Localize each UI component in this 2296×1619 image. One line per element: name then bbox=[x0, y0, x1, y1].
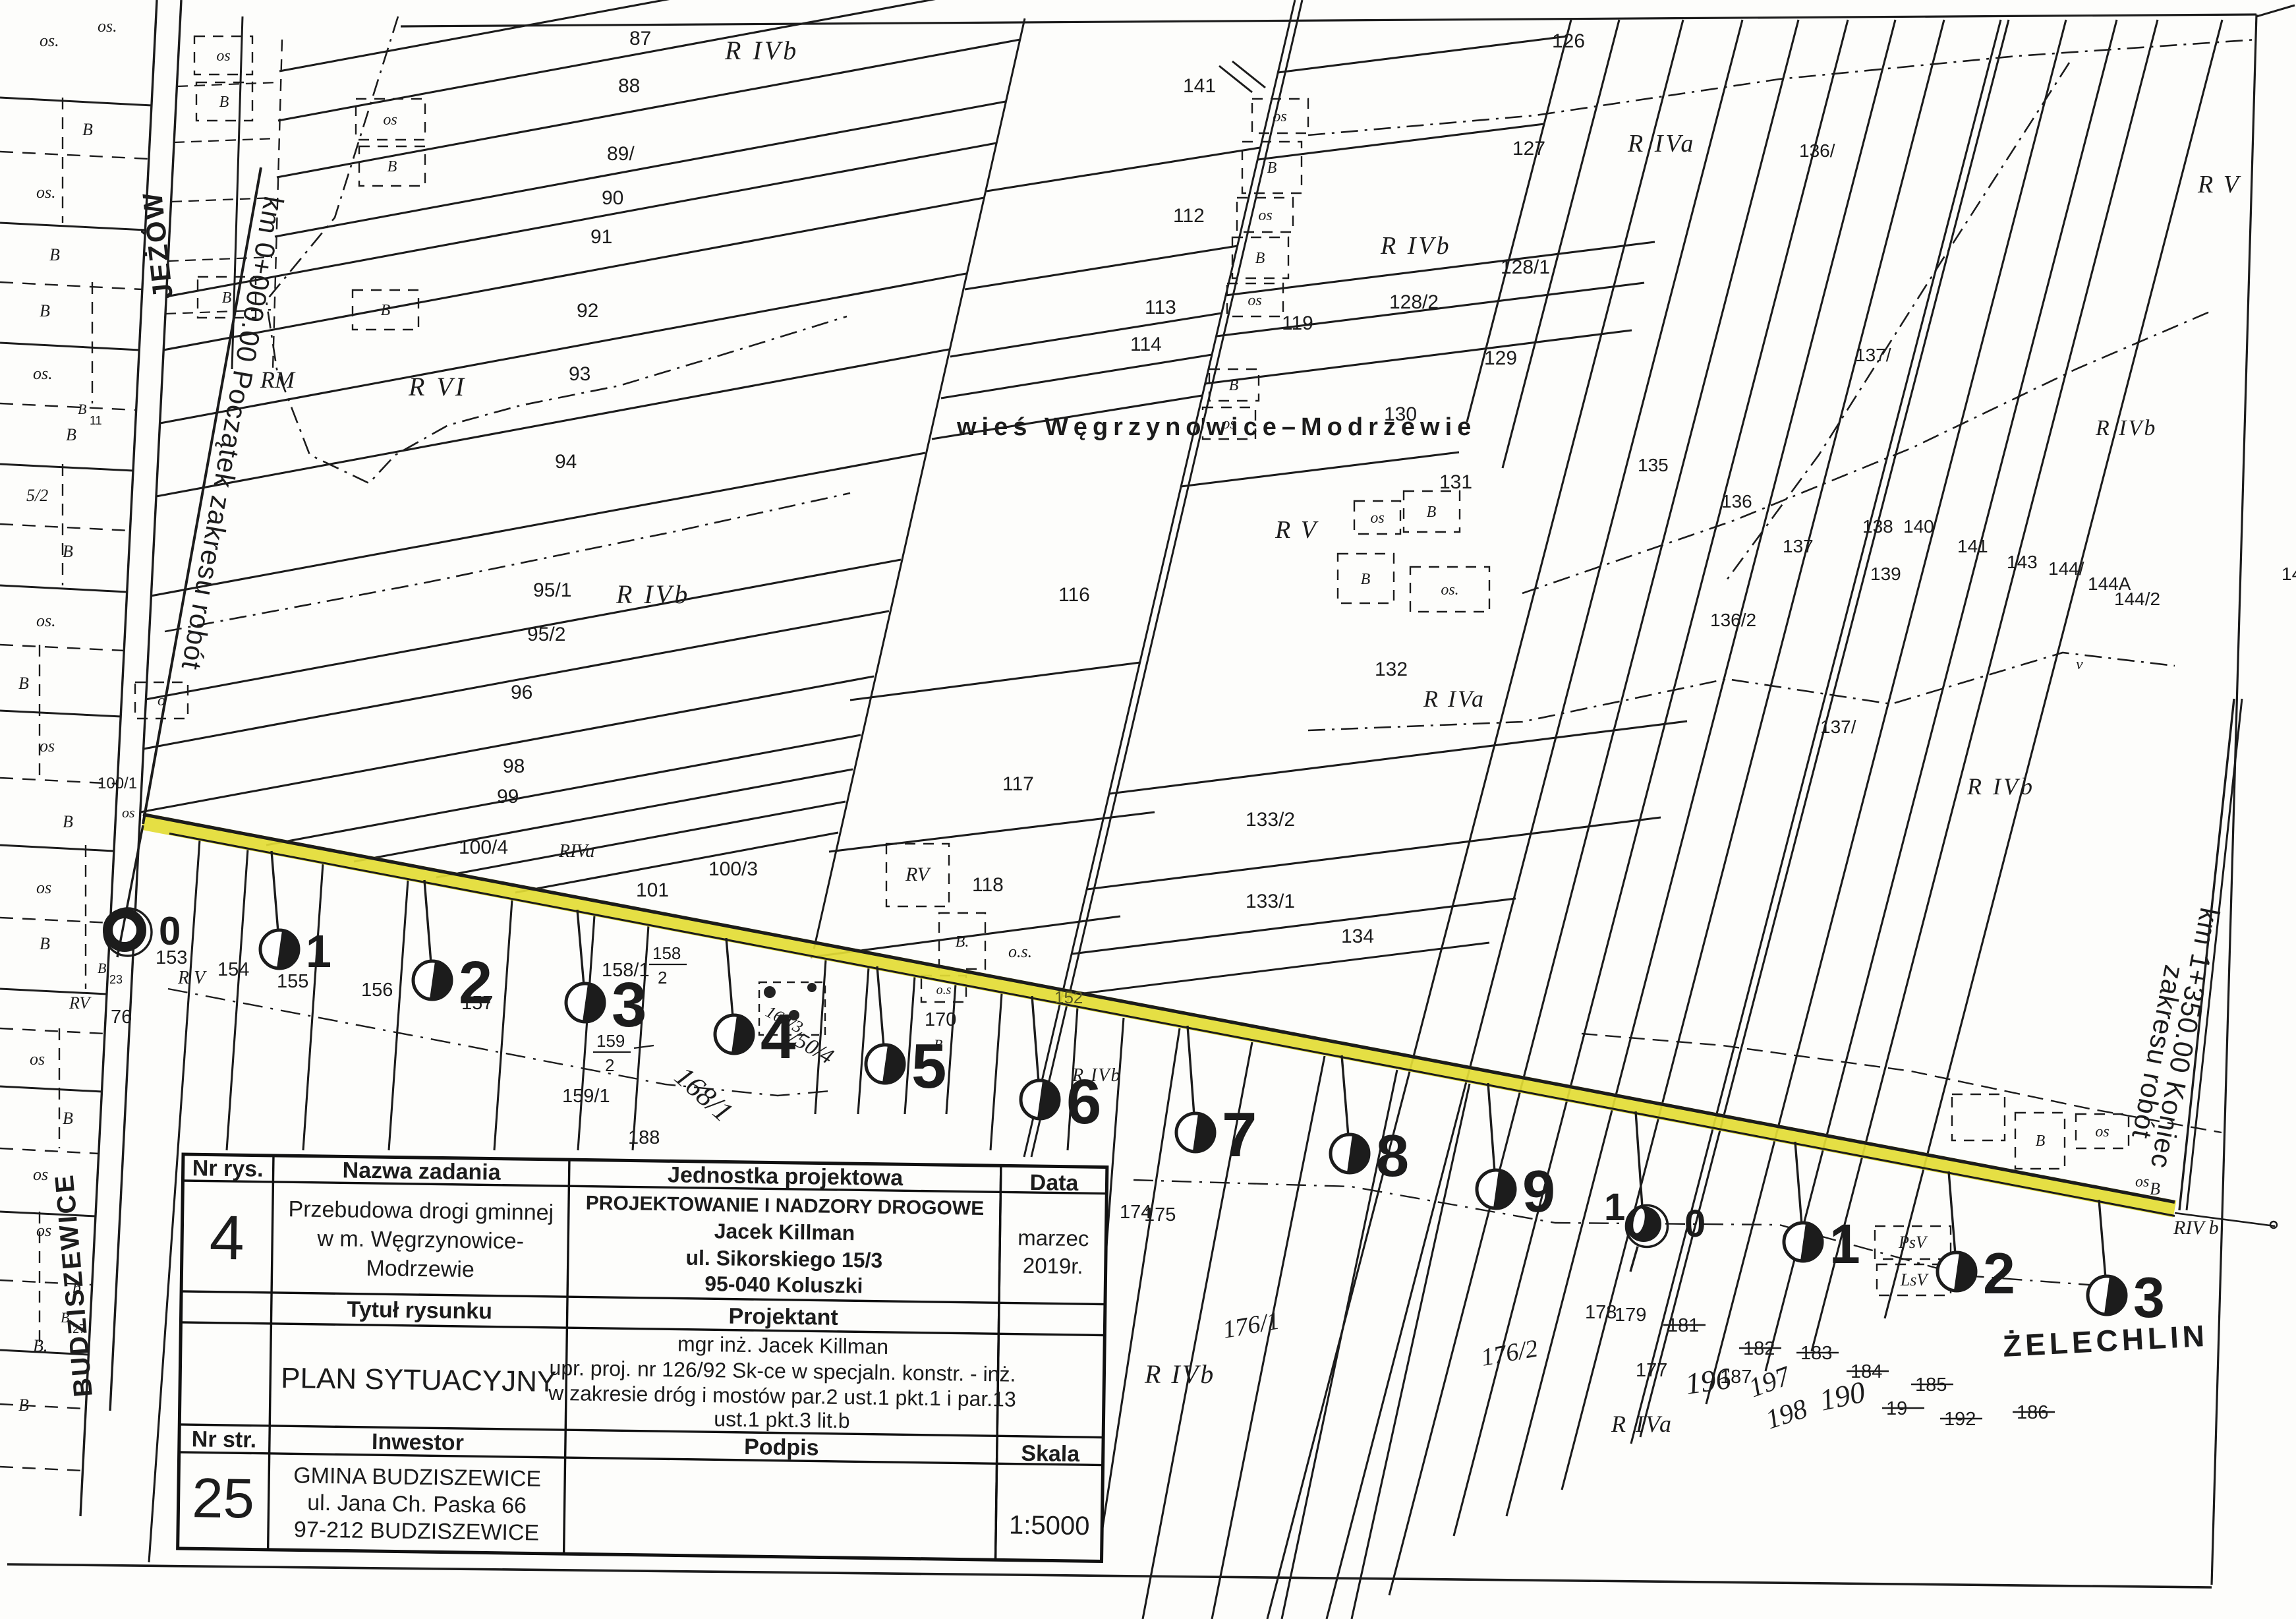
svg-text:os: os bbox=[33, 1165, 48, 1184]
svg-text:117: 117 bbox=[1002, 773, 1034, 795]
svg-text:os: os bbox=[216, 47, 230, 65]
svg-text:144/: 144/ bbox=[2048, 558, 2084, 579]
svg-text:113: 113 bbox=[1145, 297, 1176, 318]
svg-text:2: 2 bbox=[459, 949, 492, 1016]
svg-text:RM: RM bbox=[260, 367, 296, 393]
svg-text:B: B bbox=[2150, 1179, 2160, 1198]
svg-text:B: B bbox=[1361, 571, 1371, 588]
svg-text:152: 152 bbox=[1054, 987, 1083, 1007]
svg-text:Nazwa zadania: Nazwa zadania bbox=[342, 1158, 502, 1185]
svg-text:23: 23 bbox=[109, 973, 123, 986]
svg-text:3: 3 bbox=[612, 970, 646, 1040]
svg-text:154: 154 bbox=[217, 959, 249, 980]
svg-text:B: B bbox=[1427, 504, 1437, 521]
svg-text:5/2: 5/2 bbox=[26, 486, 48, 505]
svg-text:Nr rys.: Nr rys. bbox=[192, 1156, 264, 1182]
svg-text:ul. Jana Ch. Paska 66: ul. Jana Ch. Paska 66 bbox=[307, 1490, 527, 1519]
svg-text:92: 92 bbox=[577, 300, 598, 322]
svg-text:R IVb: R IVb bbox=[1380, 232, 1452, 260]
svg-text:B: B bbox=[219, 94, 229, 111]
svg-text:os.: os. bbox=[36, 183, 56, 202]
svg-text:91: 91 bbox=[590, 226, 612, 248]
svg-text:B: B bbox=[40, 301, 50, 320]
svg-text:R IVb: R IVb bbox=[616, 579, 690, 609]
svg-text:101: 101 bbox=[636, 879, 669, 901]
svg-text:90: 90 bbox=[602, 187, 623, 209]
svg-text:179: 179 bbox=[1615, 1305, 1646, 1326]
svg-text:4: 4 bbox=[209, 1203, 244, 1274]
svg-text:Tytuł rysunku: Tytuł rysunku bbox=[347, 1297, 492, 1324]
svg-text:B: B bbox=[63, 1109, 73, 1128]
svg-text:196: 196 bbox=[1683, 1361, 1733, 1401]
svg-text:os: os bbox=[40, 736, 55, 755]
svg-text:135: 135 bbox=[1638, 455, 1669, 475]
svg-text:6: 6 bbox=[1066, 1067, 1101, 1137]
svg-text:Przebudowa drogi gminnej: Przebudowa drogi gminnej bbox=[288, 1196, 554, 1225]
svg-text:Modrzewie: Modrzewie bbox=[366, 1256, 474, 1282]
svg-text:2: 2 bbox=[658, 968, 667, 987]
svg-text:mgr inż. Jacek Killman: mgr inż. Jacek Killman bbox=[677, 1332, 889, 1359]
svg-text:os: os bbox=[36, 878, 51, 897]
svg-text:134: 134 bbox=[1341, 926, 1374, 947]
svg-text:25: 25 bbox=[192, 1467, 255, 1530]
svg-text:B.: B. bbox=[33, 1336, 47, 1355]
svg-text:B: B bbox=[78, 401, 86, 417]
svg-text:170: 170 bbox=[925, 1009, 956, 1030]
svg-text:B: B bbox=[387, 158, 397, 175]
svg-text:99: 99 bbox=[497, 786, 519, 808]
svg-text:88: 88 bbox=[618, 75, 640, 97]
svg-text:129: 129 bbox=[1484, 347, 1517, 369]
svg-text:139: 139 bbox=[1870, 564, 1901, 584]
svg-text:Jacek Killman: Jacek Killman bbox=[714, 1219, 855, 1245]
svg-text:os.: os. bbox=[98, 16, 117, 36]
svg-text:Nr str.: Nr str. bbox=[192, 1427, 257, 1452]
svg-text:B: B bbox=[1255, 250, 1265, 267]
svg-text:R IVb: R IVb bbox=[1966, 773, 2035, 800]
svg-text:os.: os. bbox=[1441, 581, 1458, 599]
svg-text:R IVa: R IVa bbox=[1611, 1411, 1673, 1437]
svg-text:B: B bbox=[49, 245, 60, 264]
svg-text:R IVb: R IVb bbox=[1144, 1359, 1215, 1389]
svg-text:os: os bbox=[1370, 510, 1384, 527]
svg-text:B: B bbox=[63, 812, 73, 831]
svg-text:141: 141 bbox=[1183, 75, 1216, 97]
svg-text:1:5000: 1:5000 bbox=[1009, 1511, 1090, 1541]
svg-text:os: os bbox=[2135, 1173, 2149, 1191]
svg-text:Skala: Skala bbox=[1021, 1441, 1080, 1467]
svg-text:138: 138 bbox=[1862, 516, 1893, 537]
svg-text:136: 136 bbox=[1721, 491, 1752, 512]
svg-text:5: 5 bbox=[911, 1031, 946, 1102]
svg-text:11: 11 bbox=[90, 414, 102, 427]
svg-text:B: B bbox=[98, 960, 106, 976]
svg-text:0: 0 bbox=[159, 909, 181, 953]
svg-text:136/2: 136/2 bbox=[1710, 610, 1756, 630]
svg-text:95/1: 95/1 bbox=[533, 579, 571, 601]
svg-text:os: os bbox=[30, 1049, 45, 1069]
svg-text:B: B bbox=[40, 934, 50, 953]
svg-text:95-040 Koluszki: 95-040 Koluszki bbox=[704, 1272, 863, 1297]
svg-text:133/2: 133/2 bbox=[1246, 809, 1295, 831]
svg-text:R V: R V bbox=[177, 968, 207, 988]
svg-text:0: 0 bbox=[1684, 1202, 1706, 1245]
svg-text:PLAN SYTUACYJNY: PLAN SYTUACYJNY bbox=[281, 1362, 557, 1398]
svg-text:137/: 137/ bbox=[1820, 717, 1856, 737]
svg-text:128/2: 128/2 bbox=[1389, 291, 1439, 313]
svg-text:158: 158 bbox=[652, 943, 681, 963]
svg-text:wieś Węgrzynowice–Modrzewie: wieś Węgrzynowice–Modrzewie bbox=[956, 413, 1476, 441]
svg-text:137/: 137/ bbox=[1855, 345, 1891, 365]
svg-text:1: 1 bbox=[1829, 1213, 1860, 1275]
svg-text:100/3: 100/3 bbox=[708, 858, 758, 880]
svg-text:159/1: 159/1 bbox=[562, 1086, 610, 1107]
svg-text:131: 131 bbox=[1439, 471, 1472, 493]
svg-text:os: os bbox=[1248, 292, 1261, 309]
svg-text:os.: os. bbox=[40, 31, 59, 50]
svg-text:119: 119 bbox=[1282, 312, 1313, 334]
svg-text:156: 156 bbox=[361, 980, 393, 1001]
svg-text:o.s.: o.s. bbox=[1008, 942, 1032, 961]
svg-text:B: B bbox=[63, 542, 73, 561]
svg-text:R IVb: R IVb bbox=[724, 36, 799, 65]
svg-text:7: 7 bbox=[1222, 1100, 1257, 1170]
svg-text:118: 118 bbox=[972, 874, 1004, 896]
svg-text:95/2: 95/2 bbox=[527, 624, 565, 645]
svg-text:100/1: 100/1 bbox=[98, 775, 137, 792]
svg-text:100/4: 100/4 bbox=[459, 837, 508, 858]
svg-text:B: B bbox=[18, 674, 29, 693]
svg-text:9: 9 bbox=[1522, 1159, 1555, 1225]
svg-text:143: 143 bbox=[2007, 552, 2038, 572]
svg-text:ust.1 pkt.3 lit.b: ust.1 pkt.3 lit.b bbox=[714, 1407, 850, 1432]
svg-text:76: 76 bbox=[111, 1007, 132, 1028]
svg-text:87: 87 bbox=[629, 28, 651, 49]
svg-text:o.s: o.s bbox=[936, 983, 952, 997]
svg-text:v: v bbox=[2076, 656, 2083, 673]
svg-text:136/: 136/ bbox=[1799, 140, 1835, 161]
svg-text:GMINA BUDZISZEWICE: GMINA BUDZISZEWICE bbox=[293, 1463, 541, 1491]
svg-text:4: 4 bbox=[761, 1001, 795, 1072]
svg-text:B.: B. bbox=[956, 933, 969, 951]
svg-text:B: B bbox=[1267, 160, 1277, 177]
svg-text:132: 132 bbox=[1375, 659, 1408, 680]
svg-text:R VI: R VI bbox=[408, 372, 467, 401]
svg-text:B: B bbox=[82, 120, 93, 139]
svg-text:114: 114 bbox=[1130, 334, 1162, 355]
svg-text:RV: RV bbox=[69, 993, 92, 1013]
svg-text:14: 14 bbox=[2282, 564, 2296, 584]
svg-text:137: 137 bbox=[1783, 536, 1814, 556]
svg-text:8: 8 bbox=[1376, 1123, 1409, 1189]
svg-text:97-212 BUDZISZEWICE: 97-212 BUDZISZEWICE bbox=[294, 1517, 540, 1545]
svg-text:1: 1 bbox=[1604, 1186, 1625, 1229]
svg-text:R V: R V bbox=[2197, 171, 2241, 198]
svg-text:B: B bbox=[66, 425, 76, 444]
svg-text:R IVa: R IVa bbox=[1423, 686, 1485, 712]
svg-text:178: 178 bbox=[1585, 1302, 1617, 1323]
svg-text:B: B bbox=[2036, 1133, 2046, 1150]
svg-text:os: os bbox=[1258, 207, 1272, 224]
svg-text:141: 141 bbox=[1957, 536, 1988, 556]
svg-text:116: 116 bbox=[1058, 584, 1090, 606]
svg-text:os.: os. bbox=[36, 611, 56, 630]
svg-text:os: os bbox=[1273, 108, 1286, 125]
svg-text:RIV b: RIV b bbox=[2173, 1217, 2219, 1239]
svg-text:Podpis: Podpis bbox=[744, 1434, 819, 1461]
svg-text:98: 98 bbox=[503, 755, 525, 777]
svg-text:os.: os. bbox=[33, 364, 53, 383]
svg-text:Inwestor: Inwestor bbox=[372, 1429, 464, 1456]
svg-text:Jednostka projektowa: Jednostka projektowa bbox=[668, 1162, 904, 1191]
svg-text:PsV: PsV bbox=[1898, 1233, 1928, 1252]
svg-text:2019r.: 2019r. bbox=[1023, 1253, 1083, 1278]
svg-text:112: 112 bbox=[1173, 205, 1205, 227]
svg-text:140: 140 bbox=[1903, 516, 1934, 537]
svg-text:2: 2 bbox=[1983, 1241, 2015, 1306]
svg-text:os: os bbox=[2095, 1123, 2109, 1140]
svg-text:marzec: marzec bbox=[1018, 1225, 1089, 1251]
svg-text:B: B bbox=[222, 289, 232, 307]
svg-text:os: os bbox=[122, 804, 135, 821]
svg-text:B: B bbox=[18, 1396, 29, 1415]
svg-text:93: 93 bbox=[569, 363, 590, 385]
svg-text:os: os bbox=[36, 1221, 51, 1240]
svg-text:R IVa: R IVa bbox=[1627, 130, 1696, 158]
svg-text:R V: R V bbox=[1275, 516, 1319, 544]
svg-text:133/1: 133/1 bbox=[1246, 891, 1295, 912]
svg-text:155: 155 bbox=[277, 971, 308, 992]
svg-text:RV: RV bbox=[905, 864, 932, 885]
svg-text:2: 2 bbox=[605, 1055, 614, 1075]
svg-text:B: B bbox=[381, 302, 391, 319]
svg-text:94: 94 bbox=[555, 451, 577, 473]
svg-text:R IVb: R IVb bbox=[2095, 416, 2157, 440]
svg-text:w m. Węgrzynowice-: w m. Węgrzynowice- bbox=[316, 1226, 524, 1254]
svg-text:188: 188 bbox=[628, 1127, 660, 1148]
svg-text:144/2: 144/2 bbox=[2114, 589, 2160, 609]
svg-text:os: os bbox=[383, 111, 397, 129]
svg-text:Projektant: Projektant bbox=[728, 1304, 838, 1330]
svg-text:RIVa: RIVa bbox=[558, 841, 594, 862]
svg-text:ul. Sikorskiego 15/3: ul. Sikorskiego 15/3 bbox=[685, 1246, 882, 1272]
svg-text:Data: Data bbox=[1029, 1170, 1079, 1196]
svg-text:89/: 89/ bbox=[607, 143, 635, 165]
svg-text:177: 177 bbox=[1636, 1360, 1667, 1381]
svg-text:1: 1 bbox=[306, 926, 331, 977]
svg-text:96: 96 bbox=[511, 682, 532, 703]
svg-text:LsV: LsV bbox=[1900, 1270, 1930, 1289]
